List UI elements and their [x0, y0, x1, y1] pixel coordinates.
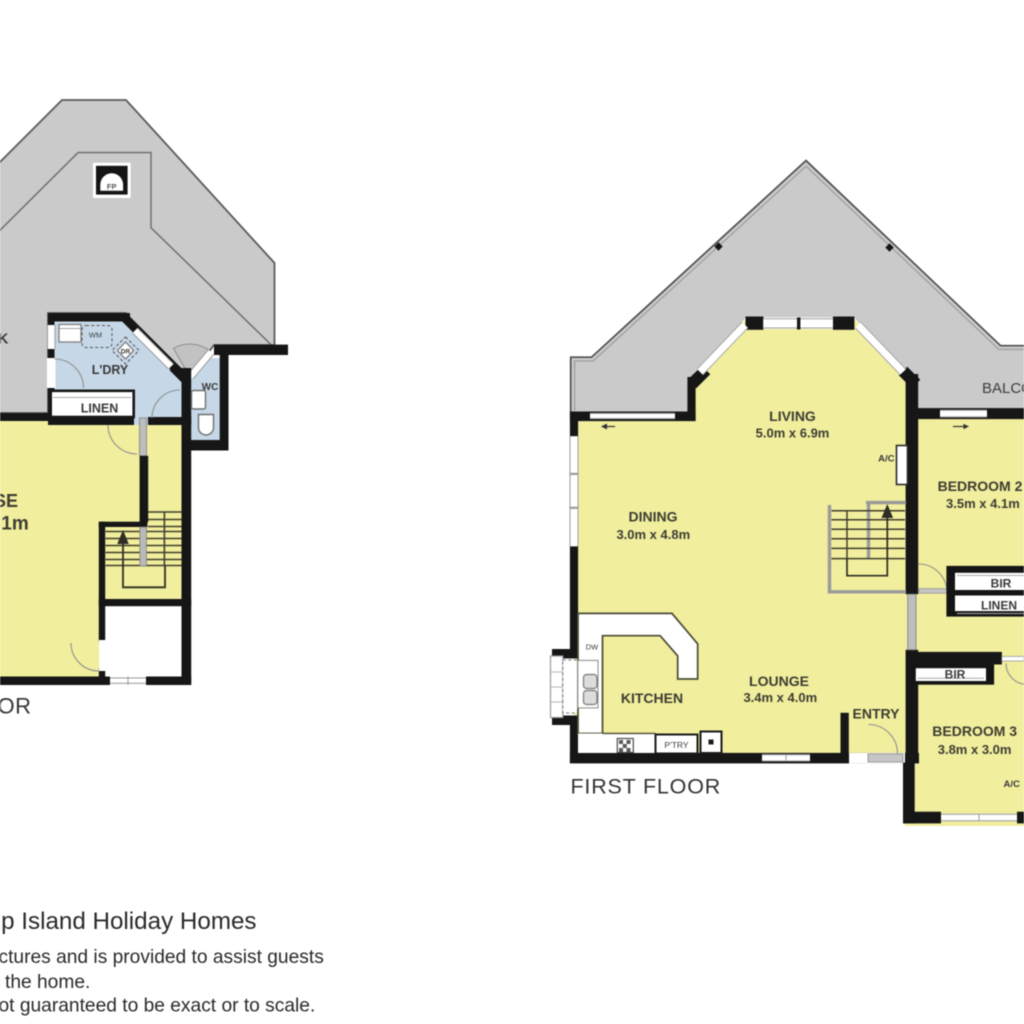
svg-text:SE: SE	[0, 491, 18, 511]
svg-text:LINEN: LINEN	[81, 402, 119, 416]
svg-text:BEDROOM 2: BEDROOM 2	[938, 478, 1023, 494]
svg-text:Phillip Island Holiday Homes: Phillip Island Holiday Homes	[0, 908, 257, 935]
svg-text:BEDROOM 3: BEDROOM 3	[932, 723, 1017, 739]
svg-text:BALCONY: BALCONY	[982, 380, 1024, 397]
svg-text:BIR: BIR	[991, 577, 1012, 591]
svg-text:DINING: DINING	[629, 509, 678, 525]
svg-text:BIR: BIR	[945, 668, 966, 682]
svg-text:P'TRY: P'TRY	[664, 740, 688, 750]
svg-text:.1m: .1m	[0, 514, 29, 535]
svg-text:DW: DW	[586, 643, 599, 652]
svg-text:FP: FP	[107, 182, 117, 191]
svg-text:the home.: the home.	[5, 972, 90, 993]
svg-text:LIVING: LIVING	[769, 408, 816, 424]
svg-text:3.8m x 3.0m: 3.8m x 3.0m	[938, 742, 1012, 757]
svg-text:3.4m x 4.0m: 3.4m x 4.0m	[743, 690, 817, 705]
svg-text:ctures and is provided to assi: ctures and is provided to assist guests	[0, 947, 324, 968]
svg-text:A/C: A/C	[878, 454, 895, 465]
svg-text:LINEN: LINEN	[981, 599, 1017, 613]
svg-text:L'DRY: L'DRY	[92, 363, 129, 377]
svg-text:ot guaranteed to be exact or t: ot guaranteed to be exact or to scale.	[0, 996, 315, 1017]
svg-text:DECK: DECK	[0, 331, 9, 348]
svg-text:OR: OR	[0, 694, 32, 719]
svg-text:A/C: A/C	[1004, 779, 1021, 790]
svg-text:3.0m x 4.8m: 3.0m x 4.8m	[616, 527, 690, 542]
svg-text:FIRST FLOOR: FIRST FLOOR	[571, 775, 722, 799]
svg-text:5.0m x 6.9m: 5.0m x 6.9m	[756, 425, 830, 440]
svg-text:3.5m x 4.1m: 3.5m x 4.1m	[946, 496, 1020, 511]
svg-text:WC: WC	[202, 382, 219, 393]
svg-text:KITCHEN: KITCHEN	[621, 690, 683, 706]
svg-text:LOUNGE: LOUNGE	[749, 673, 809, 689]
svg-text:ENTRY: ENTRY	[853, 706, 901, 722]
svg-text:DR: DR	[121, 349, 131, 356]
svg-text:WM: WM	[89, 331, 102, 340]
